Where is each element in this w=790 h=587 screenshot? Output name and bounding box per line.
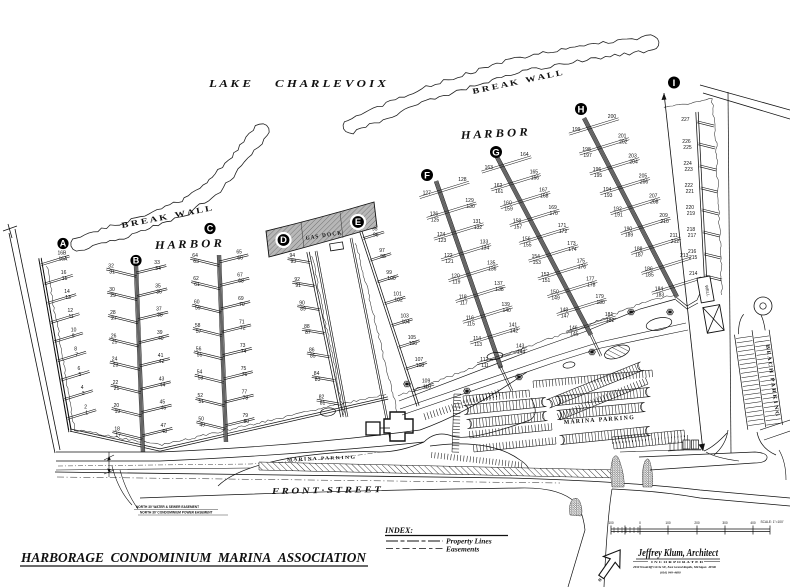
svg-text:0: 0 (639, 521, 641, 525)
svg-text:155: 155 (523, 242, 532, 248)
svg-text:180: 180 (597, 300, 606, 306)
svg-text:68: 68 (238, 279, 244, 285)
svg-text:111: 111 (481, 363, 489, 369)
svg-text:142: 142 (510, 329, 519, 335)
svg-text:217: 217 (688, 233, 697, 239)
svg-text:219: 219 (687, 211, 696, 217)
svg-text:Jeffrey Klum, Architect: Jeffrey Klum, Architect (637, 548, 719, 559)
svg-text:9: 9 (72, 334, 75, 340)
svg-text:191: 191 (614, 213, 623, 219)
svg-text:140: 140 (503, 308, 512, 314)
svg-text:63: 63 (193, 259, 199, 265)
svg-text:117: 117 (460, 301, 468, 307)
svg-text:187: 187 (635, 253, 644, 259)
svg-text:153: 153 (533, 260, 542, 266)
svg-text:59: 59 (195, 306, 201, 312)
svg-text:108: 108 (416, 363, 425, 369)
svg-text:144: 144 (517, 350, 526, 356)
svg-text:132: 132 (474, 225, 483, 231)
svg-text:49: 49 (199, 422, 205, 428)
svg-text:176: 176 (578, 265, 587, 271)
svg-text:21: 21 (114, 386, 120, 392)
svg-text:91: 91 (295, 283, 301, 289)
svg-text:147: 147 (561, 314, 570, 320)
svg-text:74: 74 (241, 349, 247, 355)
svg-text:G: G (492, 147, 499, 158)
svg-text:227: 227 (681, 117, 690, 123)
svg-text:61: 61 (194, 282, 200, 288)
svg-text:E: E (355, 216, 361, 227)
svg-text:113: 113 (474, 342, 482, 348)
svg-text:48: 48 (162, 429, 168, 435)
svg-text:17: 17 (115, 432, 121, 438)
svg-text:C: C (207, 224, 214, 234)
svg-text:166: 166 (531, 176, 540, 182)
svg-text:72: 72 (240, 325, 246, 331)
svg-text:C H A R L E V O I X: C H A R L E V O I X (275, 79, 387, 90)
svg-text:3: 3 (82, 391, 85, 397)
svg-text:200: 200 (608, 114, 617, 120)
svg-text:29: 29 (110, 293, 116, 299)
svg-text:7: 7 (75, 353, 78, 359)
svg-text:210: 210 (660, 219, 669, 225)
svg-text:1: 1 (85, 410, 88, 416)
svg-text:206: 206 (640, 180, 649, 186)
svg-text:212: 212 (671, 239, 680, 245)
svg-text:125: 125 (431, 217, 440, 223)
svg-text:145: 145 (570, 331, 579, 337)
svg-text:157: 157 (514, 225, 523, 231)
svg-text:78: 78 (243, 396, 249, 402)
svg-text:200: 200 (694, 521, 700, 525)
svg-text:13: 13 (65, 295, 71, 301)
svg-text:130: 130 (466, 204, 475, 210)
svg-text:185: 185 (645, 272, 654, 278)
svg-text:93: 93 (291, 259, 297, 265)
svg-text:161: 161 (495, 189, 504, 195)
svg-text:189: 189 (625, 233, 634, 239)
svg-text:I: I (673, 78, 676, 89)
svg-text:163: 163 (485, 165, 494, 171)
svg-text:202: 202 (619, 140, 628, 146)
svg-text:55: 55 (197, 352, 203, 358)
svg-text:A: A (60, 239, 67, 249)
svg-text:Easements: Easements (445, 545, 479, 554)
svg-text:204: 204 (629, 160, 638, 166)
svg-text:51: 51 (199, 399, 205, 405)
svg-text:110: 110 (423, 385, 431, 391)
svg-text:44: 44 (160, 382, 166, 388)
svg-text:164: 164 (520, 152, 529, 158)
svg-text:128: 128 (458, 177, 467, 183)
svg-text:199: 199 (572, 127, 581, 133)
svg-text:23: 23 (113, 363, 119, 369)
svg-text:80: 80 (244, 419, 250, 425)
svg-text:170: 170 (550, 211, 559, 217)
svg-text:223: 223 (685, 167, 694, 173)
svg-text:27: 27 (111, 316, 117, 322)
svg-text:138: 138 (495, 287, 504, 293)
svg-text:53: 53 (198, 376, 204, 382)
svg-text:I N C O R P O R A T E D: I N C O R P O R A T E D (651, 560, 704, 564)
svg-text:174: 174 (568, 247, 577, 253)
svg-text:159: 159 (504, 207, 513, 213)
svg-text:46: 46 (161, 406, 167, 412)
svg-text:F: F (424, 170, 430, 181)
svg-text:66: 66 (237, 255, 243, 261)
svg-text:149: 149 (551, 296, 560, 302)
svg-text:57: 57 (196, 329, 202, 335)
svg-text:400: 400 (750, 521, 756, 525)
svg-text:25: 25 (112, 339, 118, 345)
svg-text:2930 Woodcliff Circle SE, East: 2930 Woodcliff Circle SE, East Grand Rap… (632, 565, 716, 569)
svg-text:81: 81 (320, 401, 326, 407)
svg-text:(616) 949-4680: (616) 949-4680 (660, 571, 681, 575)
svg-text:168: 168 (540, 193, 549, 199)
svg-text:100: 100 (387, 276, 396, 282)
svg-text:178: 178 (587, 282, 596, 288)
svg-text:5: 5 (79, 372, 82, 378)
svg-text:NORTH 30' CONDOMINIUM POWER EA: NORTH 30' CONDOMINIUM POWER EASEMENT (140, 511, 213, 515)
svg-text:104: 104 (402, 319, 411, 325)
svg-text:87: 87 (305, 330, 311, 336)
svg-text:151: 151 (542, 278, 551, 284)
svg-text:HARBORAGE CONDOMINIUM MARINA: HARBORAGE CONDOMINIUM MARINA ASSOCIATION (20, 550, 366, 565)
svg-text:31: 31 (109, 270, 115, 276)
svg-text:300: 300 (722, 521, 728, 525)
svg-text:NORTH 30' WATER & SEWER EASEME: NORTH 30' WATER & SEWER EASEMENT (136, 505, 199, 509)
svg-text:106: 106 (409, 341, 418, 347)
svg-text:197: 197 (583, 153, 592, 159)
svg-text:100: 100 (665, 521, 671, 525)
svg-text:182: 182 (606, 318, 615, 324)
svg-text:85: 85 (310, 354, 316, 360)
svg-text:36: 36 (156, 289, 162, 295)
svg-text:96: 96 (373, 232, 379, 238)
svg-text:193: 193 (604, 193, 613, 199)
svg-text:16A: 16A (59, 257, 69, 263)
svg-text:76: 76 (242, 372, 248, 378)
svg-text:136: 136 (488, 266, 497, 272)
svg-text:70: 70 (239, 302, 245, 308)
svg-text:89: 89 (300, 306, 306, 312)
svg-text:42: 42 (159, 359, 165, 365)
svg-text:B: B (133, 256, 140, 266)
svg-text:102: 102 (394, 298, 403, 304)
svg-text:215: 215 (689, 255, 698, 261)
svg-text:225: 225 (683, 145, 692, 151)
svg-text:119: 119 (452, 280, 460, 286)
svg-text:L A K E: L A K E (208, 79, 251, 90)
svg-text:15: 15 (62, 276, 68, 282)
svg-text:D: D (280, 234, 287, 245)
svg-text:INDEX:: INDEX: (384, 526, 413, 535)
svg-text:H: H (578, 104, 585, 115)
svg-text:214: 214 (689, 271, 698, 277)
svg-text:40: 40 (158, 336, 164, 342)
svg-text:134: 134 (481, 246, 490, 252)
svg-text:SCALE: 1"=100': SCALE: 1"=100' (761, 520, 784, 524)
svg-text:F R O N T · S T R E E T: F R O N T · S T R E E T (271, 484, 382, 496)
svg-text:98: 98 (380, 254, 386, 260)
svg-text:221: 221 (686, 189, 695, 195)
svg-text:115: 115 (467, 321, 475, 327)
svg-text:172: 172 (559, 229, 568, 235)
svg-text:100: 100 (608, 521, 614, 525)
svg-text:38: 38 (157, 313, 163, 319)
svg-text:127: 127 (423, 191, 432, 197)
svg-text:19: 19 (115, 409, 121, 415)
svg-text:208: 208 (650, 199, 659, 205)
svg-text:123: 123 (438, 238, 447, 244)
svg-text:34: 34 (155, 266, 161, 272)
svg-text:H A R B O R: H A R B O R (154, 238, 223, 252)
svg-text:83: 83 (315, 377, 321, 383)
svg-text:121: 121 (445, 259, 454, 265)
svg-text:11: 11 (69, 314, 74, 320)
svg-text:183: 183 (656, 292, 665, 298)
svg-text:195: 195 (594, 173, 603, 179)
